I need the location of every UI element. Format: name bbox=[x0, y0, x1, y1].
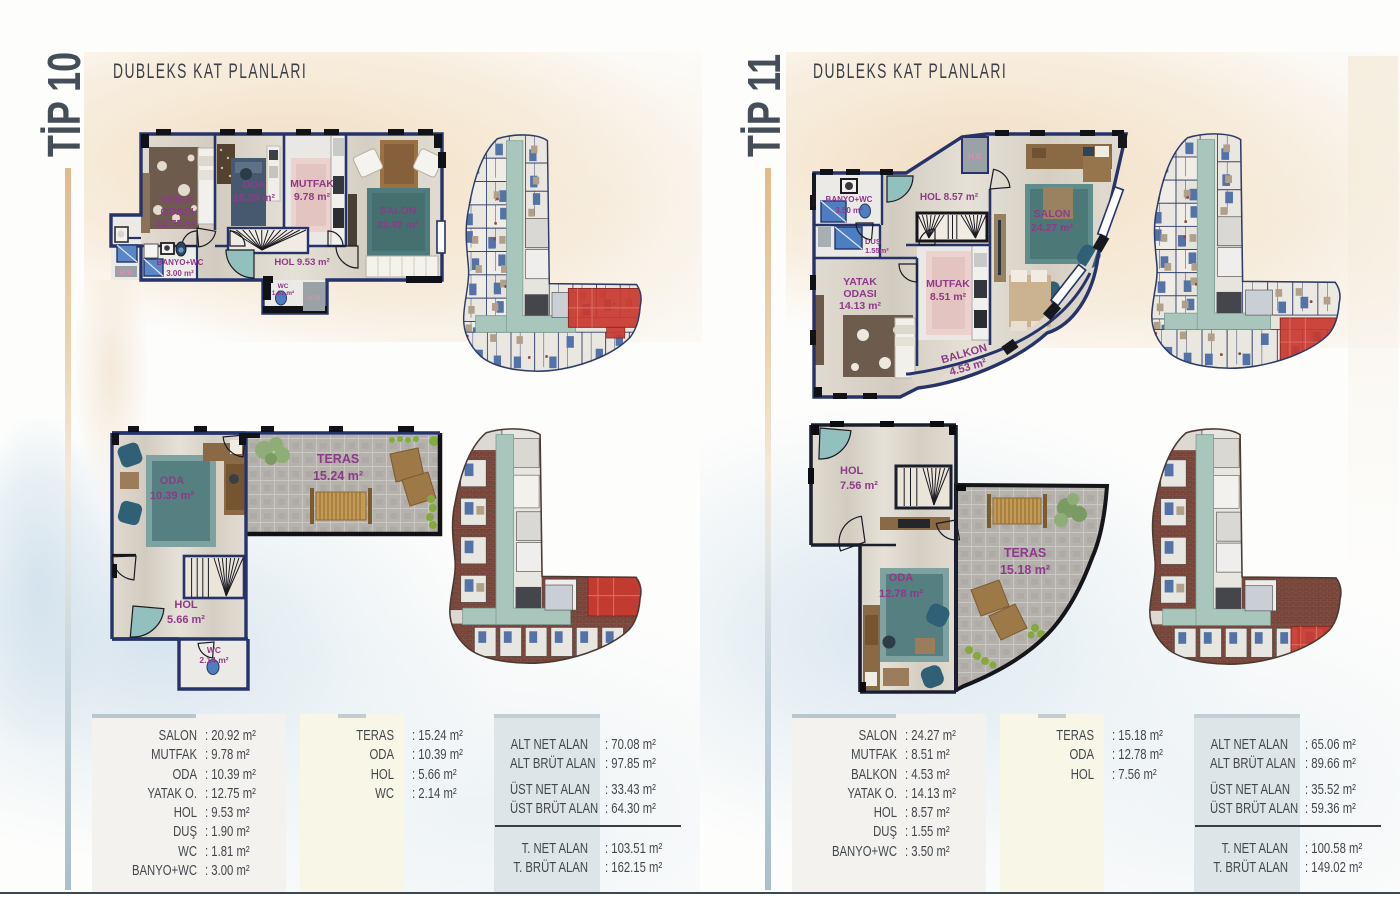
svg-text:H.B: H.B bbox=[308, 293, 322, 302]
svg-text:ODA: ODA bbox=[889, 572, 914, 584]
svg-text:12.75 m²: 12.75 m² bbox=[156, 218, 199, 230]
svg-text:1.81 m²: 1.81 m² bbox=[272, 290, 295, 297]
svg-text:10.39 m²: 10.39 m² bbox=[150, 490, 194, 502]
svg-text:YATAK: YATAK bbox=[843, 276, 877, 288]
svg-text:ODA: ODA bbox=[242, 179, 266, 191]
svg-text:15.18 m²: 15.18 m² bbox=[1000, 563, 1050, 577]
svg-text:ODA: ODA bbox=[160, 475, 185, 487]
svg-text:10.39 m²: 10.39 m² bbox=[233, 192, 276, 204]
svg-text:3.50 m²: 3.50 m² bbox=[835, 206, 863, 215]
svg-text:SALON: SALON bbox=[380, 205, 417, 217]
svg-text:TERAS: TERAS bbox=[317, 452, 359, 466]
svg-text:2.14 m²: 2.14 m² bbox=[199, 655, 228, 665]
svg-text:1.55m²: 1.55m² bbox=[865, 246, 889, 255]
svg-text:ODASI: ODASI bbox=[843, 288, 876, 300]
svg-text:14.13 m²: 14.13 m² bbox=[839, 300, 882, 312]
svg-text:9.78 m²: 9.78 m² bbox=[294, 191, 331, 203]
svg-text:12.78 m²: 12.78 m² bbox=[879, 588, 923, 600]
svg-text:WC: WC bbox=[207, 645, 221, 655]
svg-text:YATAK: YATAK bbox=[160, 194, 194, 206]
svg-text:H.B: H.B bbox=[968, 152, 982, 161]
svg-text:SALON: SALON bbox=[1034, 208, 1071, 220]
svg-text:20.92 m²: 20.92 m² bbox=[377, 219, 420, 231]
svg-text:ODASI: ODASI bbox=[160, 206, 193, 218]
svg-text:HOL: HOL bbox=[174, 599, 198, 611]
svg-text:8.51 m²: 8.51 m² bbox=[930, 291, 967, 303]
svg-text:HOL 8.57 m²: HOL 8.57 m² bbox=[920, 192, 979, 203]
svg-text:5.66 m²: 5.66 m² bbox=[167, 614, 205, 626]
svg-text:DUŞ: DUŞ bbox=[865, 237, 881, 246]
svg-text:24.27 m²: 24.27 m² bbox=[1031, 222, 1074, 234]
svg-text:MUTFAK: MUTFAK bbox=[926, 278, 970, 290]
svg-text:BANYO+WC: BANYO+WC bbox=[157, 258, 204, 267]
svg-text:HOL 9.53 m²: HOL 9.53 m² bbox=[274, 257, 329, 268]
svg-text:15.24 m²: 15.24 m² bbox=[313, 469, 363, 483]
svg-text:H.B: H.B bbox=[120, 268, 134, 277]
svg-text:BANYO+WC: BANYO+WC bbox=[826, 195, 873, 204]
svg-text:HOL: HOL bbox=[840, 465, 864, 477]
svg-text:3.00 m²: 3.00 m² bbox=[166, 269, 194, 278]
svg-text:TERAS: TERAS bbox=[1004, 546, 1046, 560]
svg-text:WC: WC bbox=[278, 283, 289, 290]
svg-text:7.56 m²: 7.56 m² bbox=[840, 480, 878, 492]
svg-text:MUTFAK: MUTFAK bbox=[290, 178, 334, 190]
